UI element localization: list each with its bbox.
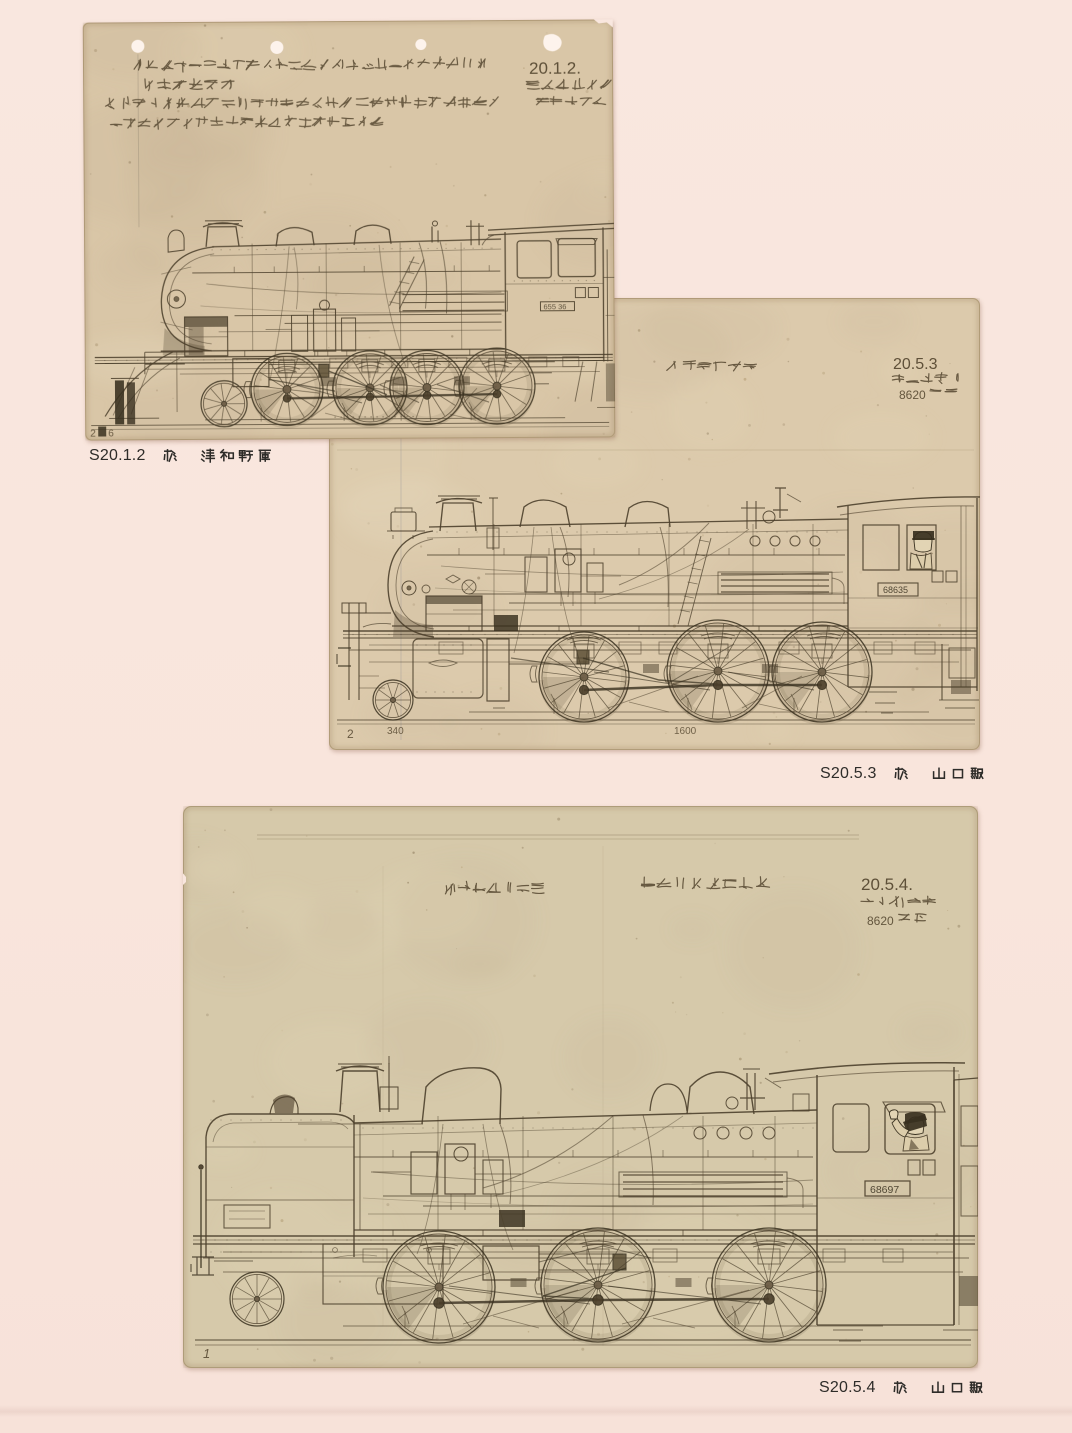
svg-text:20.1.2.: 20.1.2. bbox=[529, 59, 581, 78]
svg-text:68635: 68635 bbox=[883, 585, 908, 595]
svg-text:340: 340 bbox=[387, 726, 404, 737]
svg-text:1: 1 bbox=[203, 1346, 210, 1361]
svg-text:68697: 68697 bbox=[870, 1184, 899, 1196]
svg-text:2: 2 bbox=[90, 429, 96, 440]
svg-text:20.5.4.: 20.5.4. bbox=[861, 875, 913, 894]
svg-text:1600: 1600 bbox=[674, 726, 697, 737]
svg-text:6: 6 bbox=[108, 428, 114, 439]
svg-text:8620: 8620 bbox=[899, 388, 926, 402]
svg-text:8620: 8620 bbox=[867, 914, 894, 928]
svg-text:655 36: 655 36 bbox=[543, 302, 566, 311]
svg-text:20.5.3: 20.5.3 bbox=[893, 356, 938, 373]
svg-text:2: 2 bbox=[347, 727, 354, 741]
